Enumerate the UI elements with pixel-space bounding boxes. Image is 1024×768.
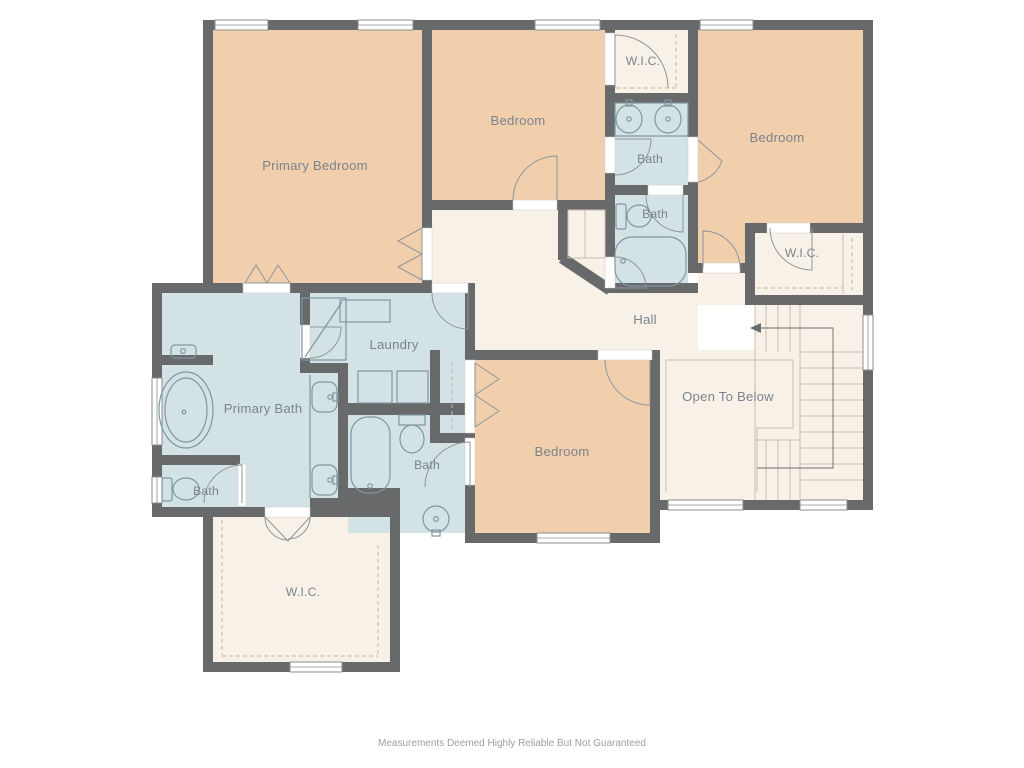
- wall-laundry-bottom: [348, 403, 465, 415]
- room-label-hall: Hall: [633, 312, 657, 327]
- room-label-bath-hall: Bath: [642, 207, 668, 221]
- room-label-bedroom-right: Bedroom: [750, 130, 805, 145]
- opening-wic-bottom: [265, 507, 310, 517]
- wall-wic-right-bottom: [745, 295, 873, 305]
- wall-vanity: [338, 373, 348, 498]
- room-label-primary-bath: Primary Bath: [224, 401, 303, 416]
- window: [668, 500, 743, 510]
- room-label-bath-primary-wc: Bath: [193, 484, 219, 498]
- opening-hall-bath: [605, 257, 615, 288]
- window: [800, 500, 847, 510]
- hall-floor-upper: [432, 210, 605, 293]
- room-label-bath-jack-jill: Bath: [637, 152, 663, 166]
- wall-hall-niche: [558, 210, 568, 260]
- room-label-wic-right: W.I.C.: [785, 246, 819, 260]
- primary-bedroom-floor: [213, 30, 422, 283]
- wall-primary-bedroom-left: [203, 20, 213, 293]
- hall-floor-east: [698, 273, 745, 305]
- window: [535, 20, 600, 30]
- opening-bedroom-bottom: [598, 350, 652, 360]
- window: [215, 20, 268, 30]
- floor-plan: Primary Bedroom Bedroom W.I.C. Bath Bedr…: [0, 0, 1024, 768]
- opening-jack-jill-right: [688, 137, 698, 182]
- opening-jack-jill-left: [605, 137, 615, 173]
- room-label-laundry: Laundry: [369, 337, 418, 352]
- room-label-open-to-below: Open To Below: [682, 389, 774, 404]
- opening-laundry: [432, 283, 468, 293]
- window: [152, 378, 162, 445]
- window: [863, 315, 873, 370]
- wall-wic-bottom-top-right: [310, 498, 400, 517]
- wall-wic-right-left: [745, 223, 755, 305]
- window: [358, 20, 413, 30]
- open-to-below-floor: [660, 350, 755, 500]
- wall-wic-bottom-left: [203, 507, 213, 672]
- opening-bedroom-right: [703, 263, 740, 273]
- window: [700, 20, 753, 30]
- hall-floor-middle: [475, 293, 698, 350]
- room-label-wic-top: W.I.C.: [626, 54, 660, 68]
- window: [152, 477, 162, 503]
- room-label-wic-bottom: W.I.C.: [286, 585, 320, 599]
- room-label-bedroom-top: Bedroom: [491, 113, 546, 128]
- room-label-bedroom-bottom: Bedroom: [535, 444, 590, 459]
- room-label-bath-ensuite: Bath: [414, 458, 440, 472]
- opening-primary-closet: [243, 283, 290, 293]
- wall-primary-bath-stub: [162, 355, 213, 365]
- wall-wic-bath: [605, 93, 698, 103]
- wall-wic-bottom-right: [390, 488, 400, 672]
- wall-closet-left: [430, 350, 440, 443]
- wall-small-bath-top: [152, 455, 240, 465]
- opening-wic-right: [767, 223, 810, 233]
- wall-outer-right: [863, 20, 873, 510]
- opening-bath-bath: [648, 185, 683, 195]
- window: [537, 533, 610, 543]
- wall-laundry-right: [465, 293, 475, 350]
- opening-wic-top: [605, 33, 615, 85]
- room-label-primary-bedroom: Primary Bedroom: [262, 158, 368, 173]
- wic-right-floor: [755, 233, 863, 295]
- opening-bedroom-top: [513, 200, 557, 210]
- floor-plan-canvas: Primary Bedroom Bedroom W.I.C. Bath Bedr…: [0, 0, 1024, 768]
- disclaimer-text: Measurements Deemed Highly Reliable But …: [378, 738, 646, 749]
- opening-bedroom-closet: [465, 360, 475, 433]
- wall-bedroom-bottom-right: [650, 350, 660, 543]
- window: [290, 662, 342, 672]
- opening-primary-bedroom: [422, 228, 432, 280]
- jack-jill-bath-floor: [615, 103, 688, 185]
